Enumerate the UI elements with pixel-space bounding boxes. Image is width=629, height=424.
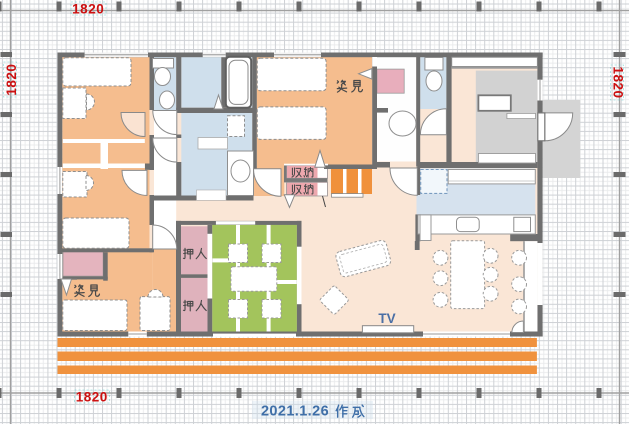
svg-text:TV: TV [378,311,395,326]
svg-text:2021.1.26: 2021.1.26 [261,404,329,420]
svg-text:1820: 1820 [76,390,108,405]
svg-text:1820: 1820 [72,1,104,16]
